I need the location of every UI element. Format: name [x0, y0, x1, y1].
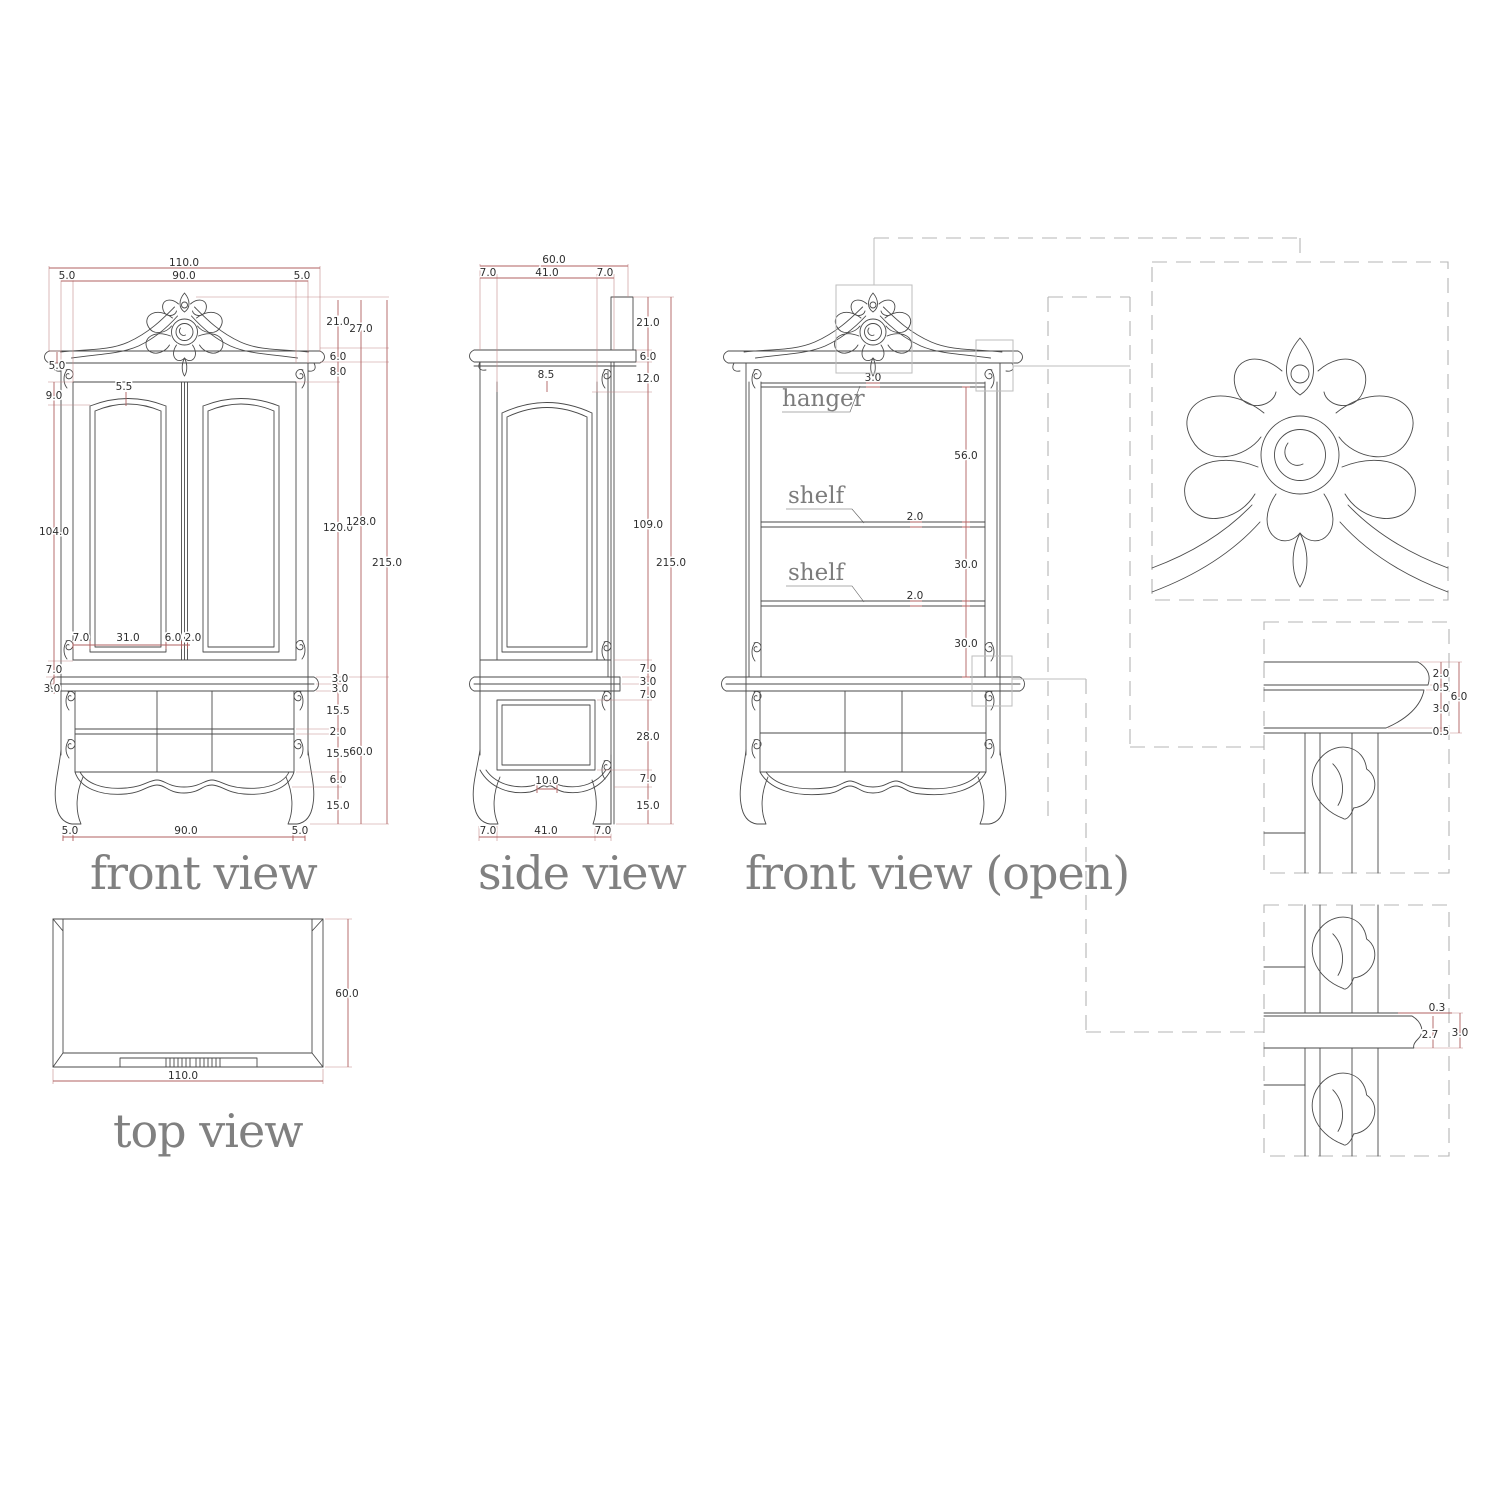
top-view: 60.0 110.0 top view [53, 919, 359, 1158]
dim-cornice-upper-lip: 0.5 [1433, 682, 1450, 694]
dim-front-cornice-height: 6.0 [330, 351, 347, 363]
post-scroll [66, 692, 75, 710]
dim-front-arch-rise: 5.5 [116, 381, 133, 393]
cornice-detail-box [1264, 622, 1449, 873]
dim-shelf-body: 2.7 [1422, 1029, 1439, 1041]
dim-front-upper-total: 128.0 [346, 516, 376, 528]
dim-side-front-frame: 7.0 [480, 267, 497, 279]
dim-open-space-upper: 30.0 [954, 559, 977, 571]
cornice-detail-view: 2.0 0.5 3.0 0.5 6.0 [1264, 622, 1467, 873]
dim-front-door-panel: 31.0 [116, 632, 139, 644]
dim-front-crest-height: 21.0 [326, 316, 349, 328]
dim-front-waist-bottom: 3.0 [332, 683, 349, 695]
side-view: 60.0 7.0 41.0 7.0 21.0 6.0 12.0 8.5 109.… [470, 254, 687, 900]
top-outline [53, 919, 323, 1067]
hinge-strip [120, 1058, 257, 1067]
front-view-geometry [45, 293, 325, 824]
dim-side-lower-top: 7.0 [640, 689, 657, 701]
detail-pediment-curves [1152, 505, 1448, 592]
hinge-teeth [166, 1058, 220, 1067]
crest-detail-view [1152, 262, 1448, 600]
dim-side-cornice-height: 6.0 [640, 351, 657, 363]
open-crest-ornament [835, 293, 912, 376]
pilaster-scroll [64, 370, 73, 388]
dim-side-back-frame: 7.0 [597, 267, 614, 279]
post-scroll [66, 740, 75, 758]
dim-front-door-height: 104.0 [39, 526, 69, 538]
dim-side-total-height: 215.0 [656, 557, 686, 569]
dim-front-carcass-width: 90.0 [172, 270, 195, 282]
dim-side-apron-center: 10.0 [535, 775, 558, 787]
post-scroll [294, 740, 303, 758]
side-view-label: side view [478, 846, 687, 900]
dim-side-apron-height: 7.0 [640, 773, 657, 785]
dim-front-drawer-top: 15.5 [326, 705, 349, 717]
dim-open-top-rail: 3.0 [865, 372, 882, 384]
dim-front-overall-width: 110.0 [169, 257, 199, 269]
dim-shelf-front-edge: 0.3 [1429, 1002, 1446, 1014]
crest-ornament-large [1185, 338, 1416, 587]
center-stiles [182, 382, 188, 660]
dashed-connectors [874, 238, 1300, 1032]
top-inner [53, 919, 323, 1067]
right-door-panel [203, 399, 279, 653]
dim-side-base-panel: 41.0 [534, 825, 557, 837]
pilaster-scroll [296, 370, 305, 388]
dim-side-panel-height: 109.0 [633, 519, 663, 531]
crest-detail-geometry [1152, 338, 1448, 592]
top-view-extension-lines [53, 919, 352, 1084]
cornice-detail-geometry [1264, 662, 1433, 873]
side-arch-panel [502, 403, 592, 653]
dim-side-overall-depth: 60.0 [542, 254, 565, 266]
dim-shelf-total: 3.0 [1452, 1027, 1469, 1039]
dim-front-right-overhang: 5.0 [294, 270, 311, 282]
open-view: 3.0 56.0 2.0 30.0 2.0 30.0 hanger shelf … [722, 293, 1130, 900]
dim-top-width: 110.0 [168, 1070, 198, 1082]
front-view: 110.0 5.0 90.0 5.0 21.0 27.0 6.0 8.0 5.0… [39, 257, 402, 900]
dim-open-shelf-upper-thickness: 2.0 [907, 511, 924, 523]
shelf-upper-leader [786, 509, 864, 523]
side-scroll [602, 370, 611, 388]
cad-sheet: 110.0 5.0 90.0 5.0 21.0 27.0 6.0 8.0 5.0… [0, 0, 1500, 1500]
dim-front-foot-right: 5.0 [292, 825, 309, 837]
shelf-lower-leader [786, 586, 864, 602]
shelf-detail-geometry [1264, 905, 1428, 1156]
shelf-lower-annotation: shelf [788, 560, 846, 586]
acanthus-leaf-carving-lower [1312, 1073, 1375, 1145]
side-front-leg [473, 750, 500, 824]
open-waist [722, 677, 1025, 691]
open-scroll [752, 370, 761, 388]
open-shelf-upper [761, 522, 985, 527]
dim-open-space-lower: 30.0 [954, 638, 977, 650]
open-cornice [724, 351, 1023, 371]
dim-front-door-stile: 7.0 [73, 632, 90, 644]
dim-front-inner-stile: 6.0 [165, 632, 182, 644]
pilaster-scroll [296, 641, 305, 659]
open-scroll [752, 643, 761, 661]
top-view-geometry [53, 919, 323, 1067]
dim-side-arch-top: 12.0 [636, 373, 659, 385]
dim-side-leg-height: 15.0 [636, 800, 659, 812]
lower-chest [75, 691, 294, 772]
dim-side-lower-panel: 28.0 [636, 731, 659, 743]
acanthus-leaf-carving [1312, 747, 1375, 819]
waist-moulding [51, 677, 319, 691]
dim-front-crest-total: 27.0 [349, 323, 372, 335]
dim-front-arch-drop: 9.0 [46, 390, 63, 402]
dim-front-leg-height: 15.0 [326, 800, 349, 812]
dim-cornice-cove: 3.0 [1433, 703, 1450, 715]
dim-cornice-lower-lip: 0.5 [1433, 726, 1450, 738]
open-scroll [985, 643, 994, 661]
top-view-dimension-lines [53, 919, 348, 1081]
dim-cornice-fascia: 2.0 [1433, 668, 1450, 680]
dim-front-drawer-divider: 2.0 [330, 726, 347, 738]
pediment-curve [61, 307, 309, 358]
dim-front-drawer-bottom: 15.5 [326, 748, 349, 760]
open-view-label: front view (open) [745, 846, 1129, 900]
front-view-label: front view [90, 846, 317, 900]
dim-front-apron-height: 6.0 [330, 774, 347, 786]
dim-side-base-front: 7.0 [480, 825, 497, 837]
dim-side-waist: 3.0 [640, 676, 657, 688]
dim-side-crest-height: 21.0 [636, 317, 659, 329]
shelf-detail-view: 0.3 2.7 3.0 [1264, 905, 1468, 1156]
open-apron [760, 772, 986, 795]
dim-front-left-overhang: 5.0 [59, 270, 76, 282]
left-leg [55, 750, 83, 824]
shelf-side-lines [1264, 967, 1305, 1085]
cornice-profile [1264, 662, 1433, 733]
dim-side-base-back: 7.0 [595, 825, 612, 837]
side-lower-panel [497, 700, 595, 770]
top-view-label: top view [113, 1104, 303, 1158]
dim-side-arch-rise: 8.5 [538, 369, 555, 381]
dim-front-cornice-side: 5.0 [49, 360, 66, 372]
open-left-leg [740, 750, 768, 824]
shelf-posts [1305, 905, 1378, 1156]
technical-drawing-canvas: 110.0 5.0 90.0 5.0 21.0 27.0 6.0 8.0 5.0… [0, 0, 1500, 1500]
dim-front-lower-height: 60.0 [349, 746, 372, 758]
open-scroll [985, 370, 994, 388]
open-view-dimension-lines [866, 383, 970, 677]
dim-side-door-bottom-gap: 7.0 [640, 663, 657, 675]
side-body [480, 362, 614, 824]
dim-open-shelf-lower-thickness: 2.0 [907, 590, 924, 602]
shelf-profile [1264, 1013, 1428, 1048]
crest-detail-box [1152, 262, 1448, 600]
detail-connectors [836, 238, 1300, 1032]
apron [75, 772, 294, 794]
cornice [45, 351, 325, 371]
acanthus-leaf-carving-upper [1312, 917, 1375, 989]
dim-front-frieze-height: 8.0 [330, 366, 347, 378]
side-waist [470, 677, 621, 691]
dim-front-total-height: 215.0 [372, 557, 402, 569]
open-lower-chest [760, 691, 986, 772]
side-scroll [602, 642, 611, 660]
dim-front-base-width: 90.0 [174, 825, 197, 837]
dim-front-door-gap: 2.0 [185, 632, 202, 644]
dim-front-waist-side: 3.0 [44, 683, 61, 695]
dim-top-depth: 60.0 [335, 988, 358, 1000]
side-scroll [602, 692, 611, 710]
hanger-annotation: hanger [782, 386, 865, 412]
left-door-panel [90, 399, 166, 653]
open-shelf-lower [761, 601, 985, 606]
dim-front-door-bottom-gap: 7.0 [46, 664, 63, 676]
dim-cornice-total: 6.0 [1451, 691, 1468, 703]
open-right-leg [978, 750, 1006, 824]
open-pediment-curve [744, 307, 1002, 358]
shelf-upper-annotation: shelf [788, 483, 846, 509]
dim-front-foot-left: 5.0 [62, 825, 79, 837]
post-scroll [294, 692, 303, 710]
dim-open-hanger-space: 56.0 [954, 450, 977, 462]
dim-side-panel-depth: 41.0 [535, 267, 558, 279]
